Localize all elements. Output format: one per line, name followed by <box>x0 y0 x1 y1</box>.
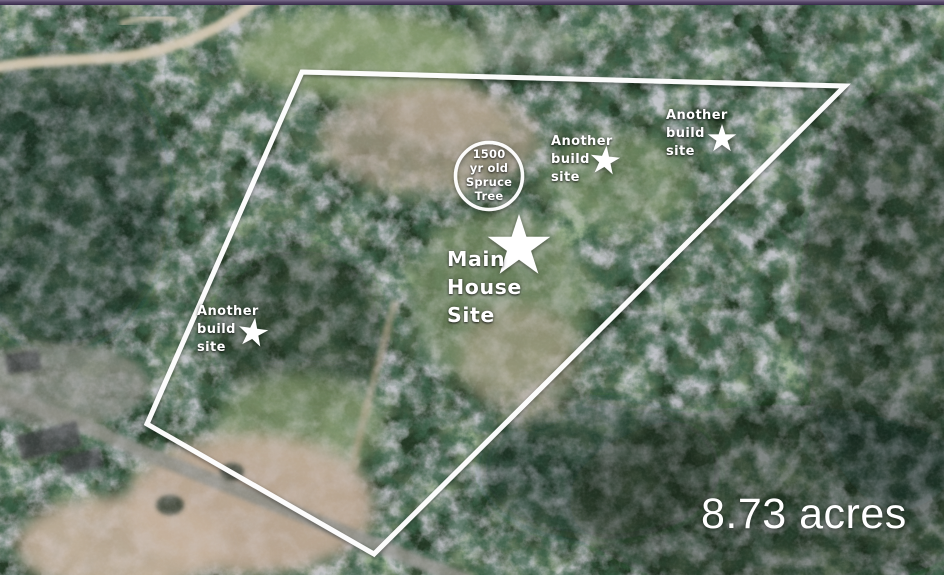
spruce-tree-label-line: Spruce <box>444 175 534 189</box>
build-site-label-left: Another build site <box>197 303 259 357</box>
property-aerial-view: 1500 yr old Spruce Tree Another build si… <box>0 0 944 575</box>
spruce-tree-label-line: 1500 <box>444 147 534 161</box>
acreage-label: 8.73 acres <box>701 490 907 539</box>
build-site-label-line: site <box>551 169 613 187</box>
spruce-tree-label: 1500 yr old Spruce Tree <box>444 147 534 203</box>
build-site-label-middle: Another build site <box>551 133 613 187</box>
build-site-label-line: Another <box>197 303 259 321</box>
build-site-label-line: site <box>666 143 728 161</box>
spruce-tree-label-line: Tree <box>444 189 534 203</box>
main-house-site-label-line: Site <box>447 301 522 329</box>
build-site-label-line: build <box>551 151 613 169</box>
build-site-label-line: site <box>197 339 259 357</box>
main-house-site-label: Main House Site <box>447 245 522 329</box>
spruce-tree-label-line: yr old <box>444 161 534 175</box>
build-site-label-right: Another build site <box>666 107 728 161</box>
main-house-site-label-line: House <box>447 273 522 301</box>
build-site-label-line: build <box>666 125 728 143</box>
build-site-label-line: Another <box>551 133 613 151</box>
build-site-label-line: build <box>197 321 259 339</box>
build-site-label-line: Another <box>666 107 728 125</box>
main-house-site-label-line: Main <box>447 245 522 273</box>
